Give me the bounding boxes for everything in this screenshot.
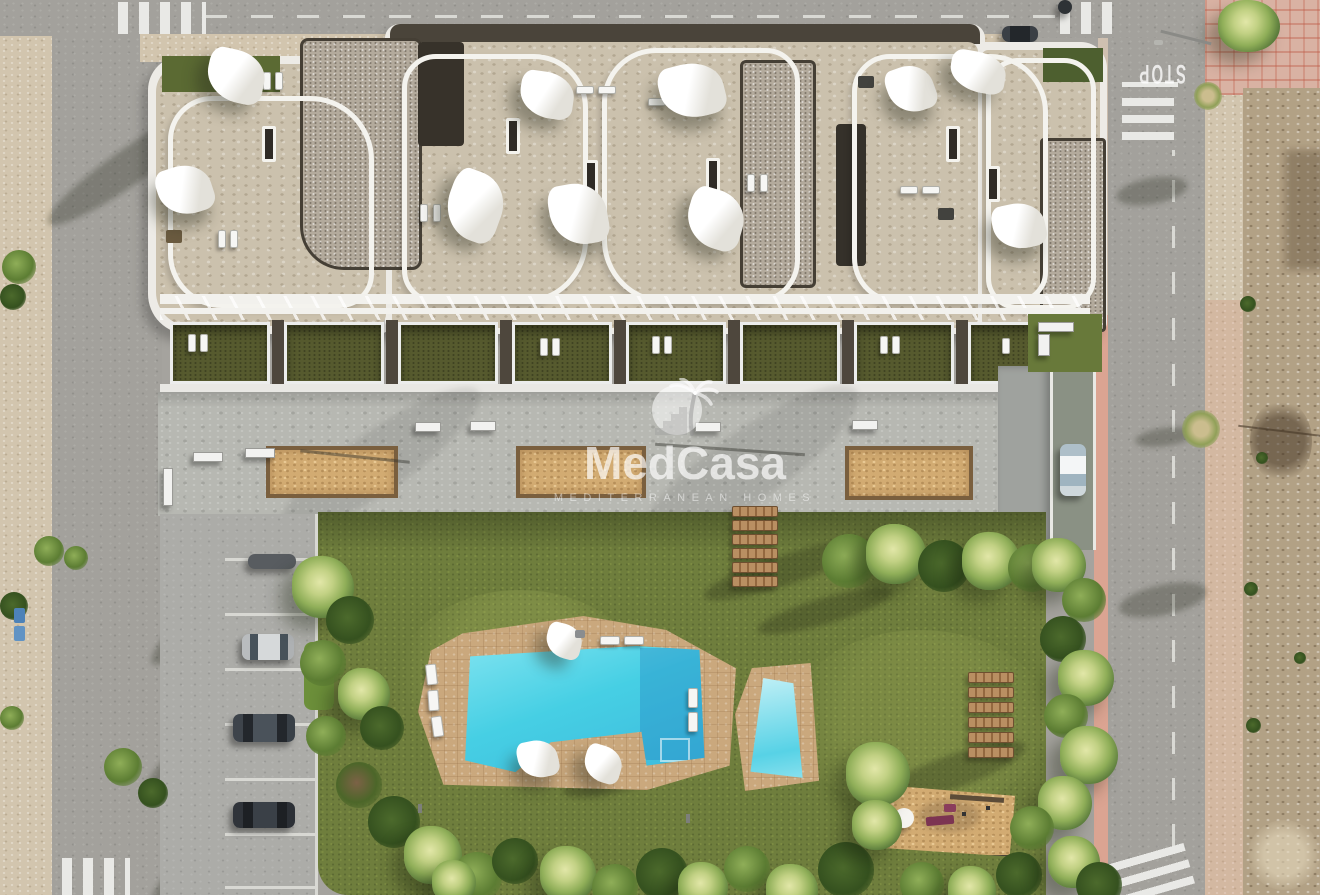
parking-line bbox=[225, 886, 315, 889]
sun-lounger bbox=[275, 72, 283, 90]
bench bbox=[193, 452, 223, 462]
bush bbox=[0, 284, 26, 310]
bush bbox=[1062, 578, 1106, 622]
terrace-pillar bbox=[614, 320, 626, 384]
terrace-garden bbox=[284, 322, 384, 384]
garden-lamp bbox=[686, 814, 690, 823]
bench bbox=[415, 422, 441, 432]
stop-marking: STOP bbox=[1138, 42, 1186, 89]
bush bbox=[724, 846, 770, 892]
palm-tree bbox=[846, 742, 910, 806]
terrace-garden bbox=[854, 322, 954, 384]
brand-name: MedCasa bbox=[584, 440, 786, 486]
wooden-bench bbox=[968, 717, 1014, 728]
playground-post bbox=[962, 812, 966, 816]
aerial-render-scene: STOP bbox=[0, 0, 1320, 895]
sun-lounger bbox=[664, 336, 672, 354]
terrace-pillar bbox=[956, 320, 968, 384]
palm-tree bbox=[1218, 0, 1280, 52]
palm-tree bbox=[540, 846, 596, 895]
terrace-pillar bbox=[728, 320, 740, 384]
dirt-rock-shadow bbox=[1250, 400, 1312, 482]
terrace-pillar bbox=[272, 320, 284, 384]
parapet bbox=[986, 58, 1096, 310]
terrace-garden bbox=[170, 322, 270, 384]
planter bbox=[845, 446, 973, 500]
watermark: MedCasa MEDITERRANEAN HOMES bbox=[555, 378, 815, 512]
bush bbox=[64, 546, 88, 570]
scrub bbox=[1246, 718, 1261, 733]
bush bbox=[360, 706, 404, 750]
top-road-center-line bbox=[205, 15, 1060, 18]
right-road-lane-line bbox=[1172, 150, 1175, 846]
playground-equipment bbox=[944, 804, 956, 812]
dirt-light-patch bbox=[1248, 820, 1320, 890]
scrub bbox=[1256, 452, 1268, 464]
sun-lounger bbox=[1002, 338, 1010, 354]
car-white bbox=[1060, 444, 1086, 496]
bush bbox=[306, 716, 346, 756]
wooden-bench bbox=[732, 576, 778, 587]
sun-lounger bbox=[576, 86, 594, 94]
sun-lounger bbox=[540, 338, 548, 356]
parked-car-silver bbox=[242, 634, 294, 660]
palm-tree bbox=[866, 524, 926, 584]
roof-table bbox=[166, 230, 182, 243]
sun-lounger bbox=[760, 174, 768, 192]
playground-post bbox=[986, 806, 990, 810]
bench bbox=[852, 420, 878, 430]
roof-access bbox=[946, 126, 960, 162]
wooden-bench bbox=[968, 732, 1014, 743]
palm-tree bbox=[1060, 726, 1118, 784]
wooden-bench bbox=[968, 747, 1014, 758]
terrace-pillar bbox=[500, 320, 512, 384]
scrub bbox=[1244, 582, 1258, 596]
bush bbox=[326, 596, 374, 644]
terrace-garden bbox=[512, 322, 612, 384]
sun-lounger bbox=[598, 86, 616, 94]
crosswalk-top-left bbox=[118, 2, 206, 34]
bench bbox=[470, 421, 496, 431]
right-sidewalk-pink-tint bbox=[1205, 300, 1245, 895]
sun-lounger bbox=[427, 690, 439, 712]
sun-lounger bbox=[552, 338, 560, 356]
parking-line bbox=[225, 833, 315, 836]
dirt-rock-shadow bbox=[1285, 150, 1320, 270]
car-on-top-road bbox=[1002, 26, 1038, 42]
wooden-bench bbox=[732, 562, 778, 573]
sun-lounger bbox=[652, 336, 660, 354]
sun-lounger bbox=[747, 174, 755, 192]
parked-car bbox=[248, 554, 296, 569]
garden-lamp bbox=[418, 804, 422, 813]
roof-table bbox=[858, 76, 874, 88]
roof-access bbox=[262, 126, 276, 162]
bush bbox=[300, 640, 346, 686]
crosswalk-left-bottom bbox=[62, 858, 130, 895]
trash-bin bbox=[14, 608, 25, 623]
wooden-bench bbox=[732, 520, 778, 531]
wooden-bench bbox=[968, 702, 1014, 713]
bush bbox=[34, 536, 64, 566]
brand-tagline: MEDITERRANEAN HOMES bbox=[554, 492, 816, 504]
sun-lounger bbox=[880, 336, 888, 354]
street-tree bbox=[1194, 82, 1222, 110]
bush bbox=[1010, 806, 1054, 850]
bush bbox=[336, 762, 382, 808]
palm-tree bbox=[852, 800, 902, 850]
sun-lounger bbox=[425, 663, 438, 685]
sun-lounger bbox=[200, 334, 208, 352]
parked-car-black bbox=[233, 802, 295, 828]
bush bbox=[138, 778, 168, 808]
crosswalk-right-top bbox=[1122, 90, 1174, 140]
bush bbox=[0, 706, 24, 730]
sun-lounger bbox=[433, 204, 441, 222]
sun-lounger bbox=[688, 688, 698, 708]
sun-lounger bbox=[600, 636, 620, 645]
sun-lounger bbox=[218, 230, 226, 248]
sun-lounger bbox=[188, 334, 196, 352]
sun-lounger bbox=[230, 230, 238, 248]
wooden-bench bbox=[732, 548, 778, 559]
bush bbox=[818, 842, 874, 895]
sun-lounger bbox=[688, 712, 698, 732]
left-sidewalk bbox=[0, 36, 52, 895]
parking-line bbox=[225, 778, 315, 781]
bush bbox=[492, 838, 538, 884]
roof-access bbox=[986, 166, 1000, 202]
terrace-garden bbox=[398, 322, 498, 384]
watermark-logo bbox=[637, 378, 733, 440]
bush bbox=[2, 250, 36, 284]
outdoor-kitchen bbox=[1038, 322, 1074, 332]
street-tree bbox=[1182, 410, 1220, 448]
terrace-garden bbox=[740, 322, 840, 384]
parking-line bbox=[225, 613, 315, 616]
wooden-bench bbox=[732, 534, 778, 545]
streetlamp-head bbox=[1154, 40, 1163, 45]
sun-lounger bbox=[892, 336, 900, 354]
wooden-bench bbox=[968, 672, 1014, 683]
car-on-top-road bbox=[1058, 0, 1072, 14]
terrace-garden bbox=[626, 322, 726, 384]
wooden-bench bbox=[968, 687, 1014, 698]
sun-lounger bbox=[420, 204, 428, 222]
bench bbox=[163, 468, 173, 506]
bush bbox=[104, 748, 142, 786]
pool-steps bbox=[660, 738, 690, 762]
bench bbox=[245, 448, 275, 458]
roof-table bbox=[938, 208, 954, 220]
terrace-pillar bbox=[386, 320, 398, 384]
outdoor-kitchen bbox=[1038, 334, 1050, 356]
sun-lounger bbox=[900, 186, 918, 194]
terrace-pillar bbox=[842, 320, 854, 384]
scrub bbox=[1240, 296, 1256, 312]
trash-bin bbox=[14, 626, 25, 641]
scrub bbox=[1294, 652, 1306, 664]
bush bbox=[996, 852, 1042, 895]
dark-roof-band bbox=[390, 24, 980, 44]
right-road bbox=[1108, 38, 1205, 895]
sun-lounger bbox=[922, 186, 940, 194]
terrace-walkway bbox=[160, 308, 1090, 314]
parked-car-dark bbox=[233, 714, 295, 742]
roof-access bbox=[506, 118, 520, 154]
deck-table bbox=[575, 630, 585, 638]
sun-lounger bbox=[624, 636, 644, 645]
